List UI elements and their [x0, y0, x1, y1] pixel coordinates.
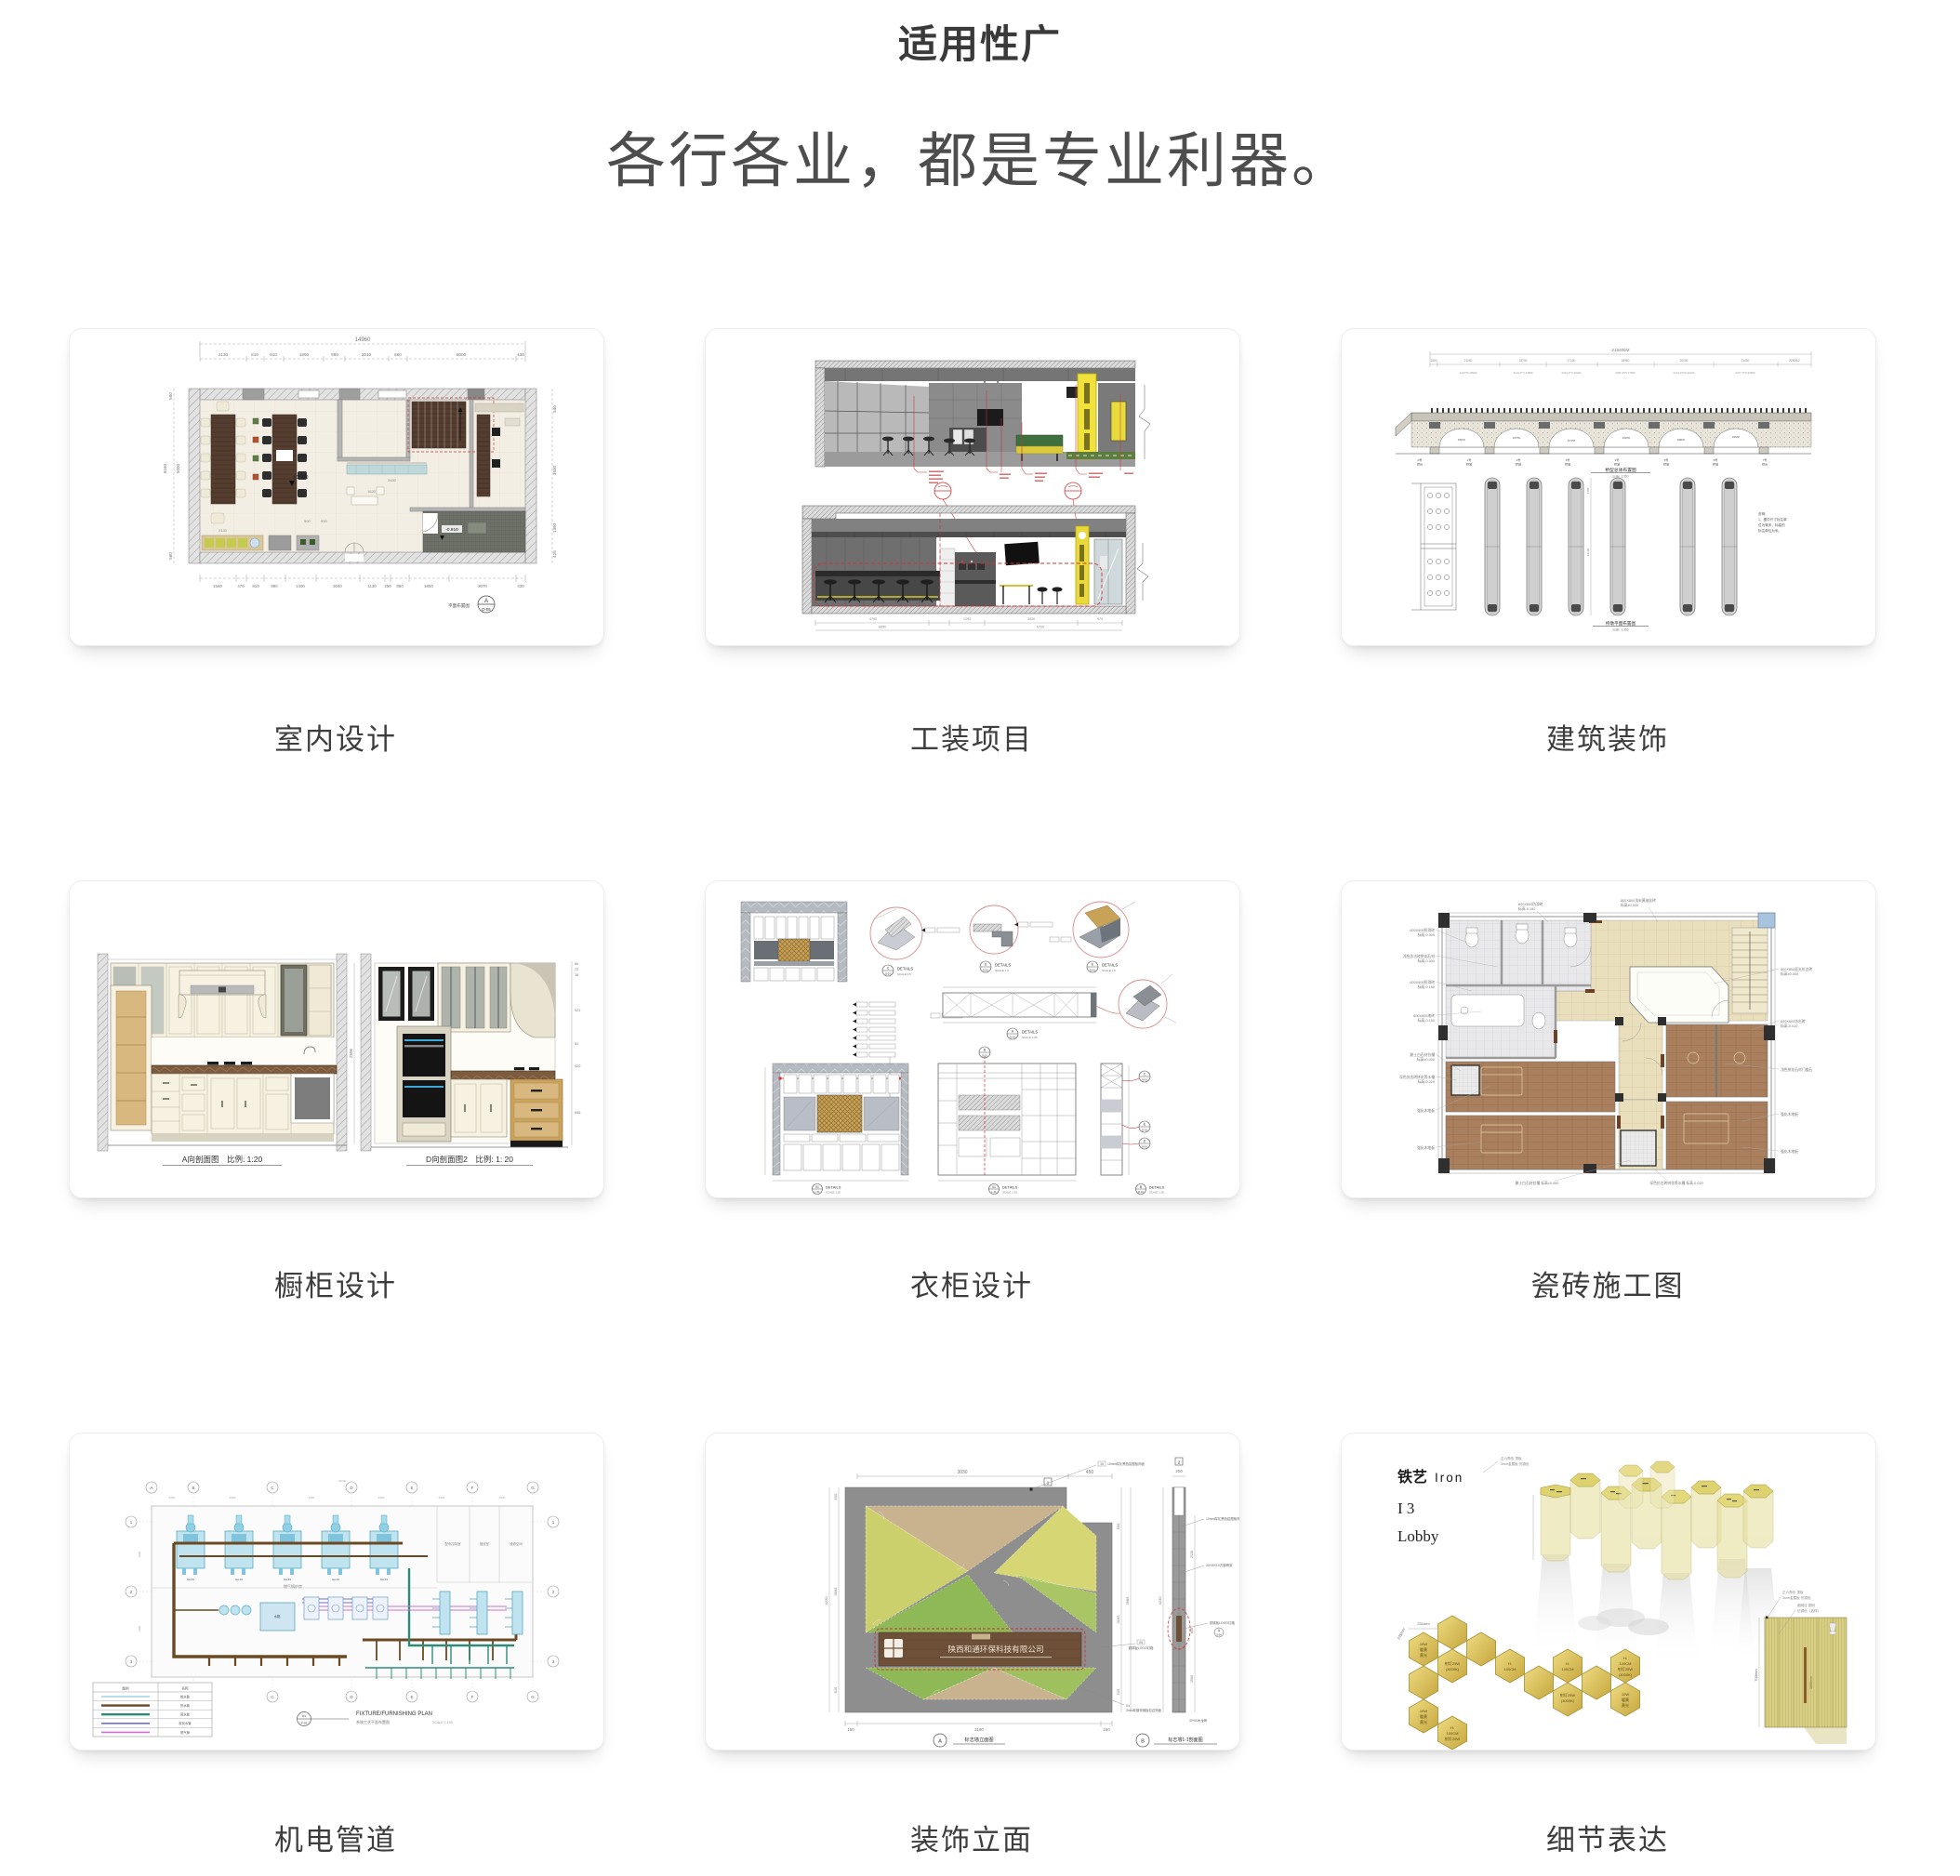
svg-text:01: 01	[815, 1185, 819, 1189]
svg-text:说明:: 说明:	[1758, 511, 1766, 516]
svg-text:DETAILS: DETAILS	[1002, 1185, 1018, 1190]
svg-text:860: 860	[396, 584, 404, 588]
svg-text:846: 846	[575, 1111, 580, 1115]
detail-circle-D	[970, 905, 1053, 954]
title-A: A 标志墙立面图	[934, 1734, 1005, 1747]
svg-text:铜锈板LOGO灯箱: 铜锈板LOGO灯箱	[1129, 1645, 1154, 1650]
svg-text:桥墩: 桥墩	[1663, 462, 1669, 467]
svg-text:3030: 3030	[957, 1470, 967, 1475]
svg-text:30*30*3.0方钢骨架: 30*30*3.0方钢骨架	[1206, 1563, 1233, 1567]
svg-text:D-01: D-01	[1138, 1190, 1144, 1194]
svg-text:DETAILS: DETAILS	[995, 963, 1011, 968]
svg-text:3: 3	[552, 1659, 555, 1664]
svg-text:1620: 1620	[367, 489, 377, 494]
svg-text:射灯25W: 射灯25W	[1618, 1666, 1633, 1671]
svg-text:550: 550	[1116, 1523, 1120, 1529]
svg-text:燃气锅炉房: 燃气锅炉房	[284, 1583, 302, 1589]
svg-text:16: 16	[575, 973, 578, 977]
svg-text:150: 150	[847, 1727, 854, 1732]
svg-text:D-01: D-01	[982, 1053, 987, 1057]
legend: 图例 名称 给水管 热水管 回水管 软化水管 燃气管	[93, 1683, 212, 1737]
svg-text:910: 910	[270, 352, 277, 357]
svg-text:5000: 5000	[457, 352, 467, 357]
triangles	[866, 1506, 1096, 1699]
svg-text:810: 810	[251, 352, 258, 357]
svg-text:1400: 1400	[296, 584, 305, 588]
svg-text:深色仿古砖拼花等水槽 标高-0.020: 深色仿古砖拼花等水槽 标高-0.020	[1649, 1181, 1702, 1185]
svg-text:2122.22*9=19100: 2122.22*9=19100	[1674, 371, 1695, 375]
svg-text:桥墩: 桥墩	[1614, 462, 1620, 467]
caption-decor-elevation: 装饰立面	[705, 1817, 1238, 1858]
caption-text: 室内设计	[274, 723, 397, 756]
svg-text:2277.7*9=20500: 2277.7*9=20500	[1735, 371, 1755, 375]
svg-text:3530: 3530	[552, 465, 557, 475]
svg-text:DETAILS: DETAILS	[1149, 1185, 1165, 1190]
caption-text: 细节表达	[1546, 1824, 1669, 1856]
svg-text:标高-0.150: 标高-0.150	[1418, 984, 1435, 989]
svg-text:强化木地板: 强化木地板	[1781, 1149, 1798, 1154]
svg-text:C: C	[887, 967, 890, 971]
svg-text:51: 51	[575, 1042, 578, 1046]
svg-text:F: F	[471, 1486, 474, 1490]
title-A: A向剖面图 比例: 1:20	[163, 1155, 282, 1166]
svg-text:2206.2*8=17650: 2206.2*8=17650	[1615, 371, 1636, 375]
svg-text:黄光: 黄光	[1622, 1702, 1629, 1708]
svg-text:标志墙1-1剖面图: 标志墙1-1剖面图	[1168, 1737, 1202, 1743]
svg-text:浅色拼花石材门槛石: 浅色拼花石材门槛石	[1781, 1067, 1812, 1072]
caption-text: 衣柜设计	[910, 1270, 1033, 1302]
elevation-title: 桥型总体布置图 scale: 1:350	[1591, 467, 1650, 479]
svg-text:scale: 1:350: scale: 1:350	[1612, 475, 1628, 479]
svg-text:爵士白石材拉槽 标高±0.000: 爵士白石材拉槽 标高±0.000	[1516, 1181, 1559, 1185]
svg-text:2130: 2130	[219, 528, 228, 533]
caption-text: 机电管道	[274, 1824, 397, 1856]
svg-text:2: 2	[1178, 1460, 1181, 1465]
dimensions-lower: 4790 1293 3430 974 6850 6730	[815, 617, 1122, 630]
svg-text:45000: 45000	[338, 1479, 347, 1483]
svg-text:A: A	[938, 1738, 942, 1744]
svg-text:2110*9=18990: 2110*9=18990	[1460, 371, 1477, 375]
svg-text:10mm厚灰黑色铝塑板饰面: 10mm厚灰黑色铝塑板饰面	[1206, 1516, 1239, 1521]
annotation-text-ticks	[929, 471, 1133, 483]
svg-text:3430: 3430	[1027, 617, 1035, 621]
svg-text:B: B	[1141, 1738, 1145, 1744]
svg-text:21050: 21050	[1464, 359, 1473, 363]
svg-text:4105: 4105	[1586, 487, 1590, 494]
svg-text:18950: 18950	[1622, 359, 1630, 363]
svg-text:1号: 1号	[1467, 457, 1472, 462]
svg-text:DETAILS: DETAILS	[897, 967, 913, 971]
svg-text:D: D	[350, 1486, 353, 1490]
svg-text:4号: 4号	[1615, 457, 1620, 462]
sheet-title: 01 P-03 FIXTURE/FURNISHING PLAN 系统工艺平面布置…	[298, 1711, 453, 1726]
svg-text:燃气管: 燃气管	[180, 1730, 191, 1735]
svg-text:系统工艺平面布置图: 系统工艺平面布置图	[356, 1719, 390, 1724]
svg-text:位为毫米，标高的: 位为毫米，标高的	[1758, 522, 1785, 527]
svg-text:平面布置图: 平面布置图	[448, 602, 470, 609]
svg-text:GA-01: GA-01	[235, 1578, 244, 1581]
svg-text:2500: 2500	[1430, 359, 1437, 363]
svg-text:600X600防滑砖: 600X600防滑砖	[1410, 928, 1435, 932]
svg-text:水箱: 水箱	[274, 1614, 281, 1618]
upper-elevation	[815, 361, 1150, 467]
svg-text:3165: 3165	[1116, 1615, 1120, 1624]
svg-text:A: A	[1012, 1030, 1014, 1034]
svg-text:515: 515	[833, 1686, 838, 1693]
caption-architecture: 建筑装饰	[1341, 716, 1874, 758]
titles: 铁艺 Iron I 3 Lobby 正六角形 顶板 3mm金属板 仿铜色	[1397, 1456, 1530, 1545]
svg-text:D-01: D-01	[1142, 1077, 1147, 1081]
railing	[1431, 408, 1807, 413]
svg-text:3480: 3480	[388, 478, 397, 482]
svg-text:R7450: R7450	[1568, 439, 1576, 443]
svg-text:R8250: R8250	[1622, 436, 1631, 440]
svg-text:H:: H:	[1508, 1661, 1512, 1666]
bar-counter	[347, 463, 427, 474]
svg-text:1: 1	[552, 1520, 555, 1525]
svg-text:射灯25W: 射灯25W	[1560, 1692, 1575, 1698]
svg-text:R5630: R5630	[1458, 438, 1466, 442]
wall-section: 200 2 4230 2130 600 1500 10mm厚灰黑色铝塑板饰面 3…	[1158, 1458, 1239, 1723]
svg-text:强化木地板: 强化木地板	[1417, 1108, 1435, 1113]
svg-text:100CM: 100CM	[1562, 1667, 1574, 1671]
svg-text:D-05: D-05	[482, 607, 491, 612]
svg-text:4230: 4230	[824, 1596, 828, 1605]
svg-text:0号: 0号	[1418, 457, 1423, 462]
plan-title: 桥墩平面布置图 scale: 1:350	[1593, 620, 1649, 632]
svg-text:L-01: L-01	[814, 1190, 820, 1194]
svg-text:860: 860	[394, 352, 402, 357]
svg-text:6160: 6160	[163, 463, 167, 473]
svg-text:1660: 1660	[213, 584, 222, 588]
svg-text:标高-0.020: 标高-0.020	[1418, 1079, 1435, 1084]
page-title: 适用性广	[0, 13, 1960, 70]
svg-text:231mm: 231mm	[1417, 1621, 1430, 1626]
svg-text:F: F	[471, 1695, 474, 1699]
svg-text:15: 15	[1100, 1462, 1104, 1466]
glass-door	[1094, 539, 1122, 604]
svg-text:H:: H:	[1566, 1661, 1569, 1666]
svg-text:D-01: D-01	[983, 968, 988, 971]
big-elevation-left: 01 L-01 DETAILS SCALE 1:25	[765, 1064, 908, 1195]
svg-text:强化木地板: 强化木地板	[1781, 1112, 1798, 1116]
svg-text:425: 425	[552, 550, 557, 558]
svg-text:D向剖面图2 比例: 1: 20: D向剖面图2 比例: 1: 20	[426, 1155, 513, 1164]
svg-text:暖黄: 暖黄	[1420, 1713, 1427, 1719]
svg-text:D-01: D-01	[1090, 968, 1095, 971]
svg-text:细网目 铜网: 细网目 铜网	[1797, 1603, 1815, 1607]
svg-text:1、图中尺寸标注单: 1、图中尺寸标注单	[1758, 517, 1787, 522]
svg-text:铁艺: 铁艺	[1397, 1468, 1427, 1486]
horizontal-section: A D-01 DETAILS SCALE 1:25	[943, 974, 1176, 1039]
svg-text:6850: 6850	[879, 626, 886, 629]
svg-text:标高-0.150: 标高-0.150	[1418, 1018, 1435, 1023]
pier-labels: 0号桥台 1号桥墩 2号桥墩 3号桥墩 4号桥墩 5号桥墩 6号桥墩 7号桥台	[1417, 457, 1768, 467]
prisms	[1541, 1461, 1773, 1579]
mini-elevation	[741, 902, 847, 982]
pier-plans: 4105 24190	[1485, 478, 1737, 615]
svg-text:3号: 3号	[1566, 457, 1570, 462]
svg-text:C: C	[1144, 1073, 1146, 1077]
svg-text:R9350: R9350	[1732, 435, 1741, 439]
svg-text:桥墩平面布置图: 桥墩平面布置图	[1606, 620, 1636, 627]
svg-text:01: 01	[992, 1185, 996, 1189]
svg-text:430: 430	[517, 584, 524, 588]
svg-text:Lobby: Lobby	[1397, 1527, 1439, 1545]
svg-text:7号: 7号	[1763, 457, 1768, 462]
svg-text:scale: 1:350: scale: 1:350	[1612, 628, 1628, 632]
notes: 说明: 1、图中尺寸标注单 位为毫米，标高的 标注单位为米。	[1758, 511, 1787, 533]
caption-wardrobe-design: 衣柜设计	[705, 1262, 1238, 1304]
callouts-right: CD-01 ED-01 DD-01	[1122, 1071, 1150, 1149]
svg-text:921: 921	[575, 1009, 580, 1012]
svg-text:72: 72	[575, 968, 578, 971]
svg-text:标高-0.300: 标高-0.300	[1418, 932, 1435, 937]
prism-cluster	[1533, 1461, 1781, 1671]
caption-commercial-project: 工装项目	[705, 716, 1238, 758]
svg-text:200: 200	[1175, 1469, 1183, 1473]
svg-text:800X800亚光仿古砖: 800X800亚光仿古砖	[1781, 967, 1812, 971]
svg-text:A: A	[484, 599, 488, 604]
svg-text:450: 450	[1086, 1470, 1094, 1475]
svg-text:3180: 3180	[974, 1727, 984, 1732]
svg-text:580: 580	[168, 392, 173, 400]
dimensions-top: 215400/2 250021050 1570017100 1895020000…	[1430, 348, 1811, 375]
svg-text:430: 430	[517, 352, 524, 357]
svg-text:P-03: P-03	[301, 1721, 308, 1724]
svg-text:100CM: 100CM	[1447, 1731, 1459, 1736]
svg-text:520: 520	[575, 1064, 580, 1068]
svg-text:D-01: D-01	[1142, 1144, 1147, 1148]
svg-text:爵士白石材拉槽: 爵士白石材拉槽	[1410, 1052, 1435, 1057]
svg-text:2506: 2506	[349, 1048, 353, 1058]
svg-text:H:: H:	[1450, 1725, 1454, 1730]
svg-text:1500: 1500	[1190, 1675, 1194, 1683]
svg-text:04: 04	[1126, 1704, 1130, 1708]
center-island	[1630, 967, 1728, 1023]
svg-text:GA-01: GA-01	[332, 1578, 340, 1581]
svg-text:(3000K): (3000K)	[1561, 1698, 1575, 1703]
sign-band: 陕西和通环保科技有限公司	[875, 1629, 1085, 1670]
lamp-icon	[1829, 1623, 1836, 1634]
svg-text:A向剖面图 比例: 1:20: A向剖面图 比例: 1:20	[182, 1155, 263, 1164]
svg-text:150: 150	[1103, 1727, 1110, 1732]
svg-text:±0.000: ±0.000	[293, 475, 309, 481]
svg-text:231mm: 231mm	[1396, 1627, 1406, 1641]
svg-text:维修空间: 维修空间	[510, 1541, 523, 1546]
svg-text:桥墩: 桥墩	[1713, 462, 1718, 467]
dark-glass-cabinet	[281, 965, 331, 1036]
svg-text:14960: 14960	[355, 337, 371, 343]
svg-text:标高±0.000: 标高±0.000	[1621, 903, 1638, 907]
svg-text:1: 1	[130, 1520, 133, 1525]
caption-cabinet-design: 橱柜设计	[69, 1262, 603, 1304]
svg-text:L-01: L-01	[991, 1190, 997, 1194]
svg-text:3mm厚镀锌钢板包边饰面: 3mm厚镀锌钢板包边饰面	[1126, 1708, 1162, 1712]
oven-tower	[397, 1026, 451, 1142]
svg-text:陕西和通环保科技有限公司: 陕西和通环保科技有限公司	[947, 1644, 1043, 1654]
pier-bodies	[1430, 447, 1768, 454]
svg-text:暖黄: 暖黄	[1622, 1697, 1629, 1702]
svg-text:9000: 9000	[138, 1551, 141, 1557]
terrace-room: -0.910	[423, 511, 525, 552]
svg-text:(3000K): (3000K)	[1619, 1672, 1633, 1677]
svg-text:810: 810	[252, 584, 259, 588]
caption-mep-piping: 机电管道	[69, 1817, 603, 1858]
svg-text:A: A	[1218, 1629, 1221, 1632]
svg-text:E: E	[1144, 1123, 1146, 1127]
svg-text:桥型总体布置图: 桥型总体布置图	[1605, 467, 1636, 473]
svg-text:Iron: Iron	[1435, 1471, 1463, 1485]
svg-text:热水管: 热水管	[180, 1703, 191, 1708]
svg-text:铜锈板LOGO灯箱: 铜锈板LOGO灯箱	[1210, 1620, 1235, 1625]
caption-text: 瓷砖施工图	[1531, 1270, 1685, 1302]
svg-text:R8830: R8830	[1677, 438, 1686, 442]
svg-text:15700: 15700	[1519, 359, 1528, 363]
drawing-reference: 平面布置图 A D-05	[448, 596, 495, 613]
svg-text:R6750: R6750	[1513, 436, 1521, 440]
svg-text:桥墩: 桥墩	[1466, 462, 1472, 467]
svg-text:SCALE 1:5: SCALE 1:5	[897, 972, 911, 976]
kitchen-elevation-drawing: A向剖面图 比例: 1:20 2506	[70, 881, 603, 1197]
detail-labels-top: C D-01 DETAILS SCALE 1:5 D D-01 DETAILS …	[882, 961, 1118, 976]
svg-text:10W: 10W	[1420, 1709, 1427, 1713]
svg-text:540: 540	[552, 405, 557, 413]
svg-text:GA-01: GA-01	[380, 1578, 389, 1581]
svg-text:黄光: 黄光	[1420, 1652, 1427, 1658]
svg-text:1000mm: 1000mm	[1809, 1676, 1813, 1689]
svg-text:2130: 2130	[219, 352, 229, 357]
svg-text:G: G	[531, 1695, 535, 1699]
svg-text:回水管: 回水管	[180, 1712, 191, 1717]
svg-text:2010: 2010	[362, 352, 372, 357]
svg-text:D: D	[985, 963, 987, 967]
svg-text:D: D	[1144, 1140, 1146, 1143]
svg-text:700mm: 700mm	[1754, 1669, 1758, 1682]
svg-text:GA-01: GA-01	[187, 1578, 195, 1581]
svg-text:250: 250	[384, 584, 391, 588]
dimensions-top: 14960 2130810 9101850 9602010 8605000 43…	[200, 337, 525, 362]
svg-text:30*50木龙骨: 30*50木龙骨	[1189, 1718, 1208, 1723]
svg-text:21400: 21400	[1741, 359, 1750, 363]
svg-text:G: G	[531, 1486, 535, 1490]
card-interior-design: 14960 2130810 9101850 9602010 8605000 43…	[69, 328, 604, 646]
svg-text:150: 150	[833, 1493, 838, 1499]
svg-text:22806/2: 22806/2	[1789, 359, 1800, 363]
caption-detail-expression: 细节表达	[1341, 1817, 1874, 1858]
svg-text:标高-0.150: 标高-0.150	[1518, 906, 1535, 911]
svg-text:6730: 6730	[1037, 626, 1044, 629]
dimensions-bottom: 1660470 810990 14002040 1130250 8601850 …	[200, 575, 525, 588]
svg-text:3070: 3070	[478, 584, 487, 588]
svg-text:SCALE 1:25: SCALE 1:25	[826, 1190, 841, 1194]
svg-text:3: 3	[130, 1659, 133, 1664]
svg-text:8400: 8400	[378, 1496, 385, 1499]
svg-text:FIXTURE/FURNISHING PLAN: FIXTURE/FURNISHING PLAN	[356, 1711, 432, 1717]
svg-text:900: 900	[321, 519, 327, 523]
svg-text:2314.2*7=16200: 2314.2*7=16200	[1561, 371, 1582, 375]
svg-text:2: 2	[552, 1590, 555, 1594]
bar-elevation-drawing: 4790 1293 3430 974 6850 6730	[706, 329, 1239, 645]
svg-text:SCALE 1:5: SCALE 1:5	[1102, 969, 1116, 972]
dimensions-left: 580 6160 5000 580	[163, 389, 180, 563]
sign-wall-drawing: 陕西和通环保科技有限公司 3030 450 1 150 3565 515 423…	[706, 1433, 1239, 1750]
svg-text:SCALE 1:5: SCALE 1:5	[995, 969, 1009, 972]
svg-text:215400/2: 215400/2	[1611, 348, 1630, 352]
big-elevation-mid: B D-01 01 L-01 DETAILS SCALE 1:25	[938, 1047, 1076, 1195]
svg-text:射灯25W: 射灯25W	[1445, 1660, 1460, 1666]
svg-text:600: 600	[1190, 1628, 1194, 1633]
page-subtitle: 各行各业，都是专业利器。	[0, 113, 1960, 199]
svg-text:3689: 3689	[1125, 1596, 1130, 1605]
svg-text:桥墩: 桥墩	[1565, 462, 1570, 467]
svg-text:E: E	[410, 1695, 413, 1699]
svg-text:1850: 1850	[299, 352, 310, 357]
bridge-elevation: R5630R6750 R7450R8250 R8830R9350 0号桥台 1号…	[1396, 408, 1811, 479]
svg-text:20000: 20000	[1680, 359, 1689, 363]
svg-text:射灯25W: 射灯25W	[1445, 1736, 1460, 1741]
svg-text:2130: 2130	[1190, 1551, 1194, 1558]
table-stools	[1000, 586, 1062, 604]
svg-text:D-04: D-04	[1216, 1634, 1222, 1637]
svg-text:D-01: D-01	[1142, 1128, 1147, 1131]
svg-text:标高-0.010: 标高-0.010	[1781, 1024, 1797, 1028]
svg-text:100CM: 100CM	[1504, 1667, 1516, 1671]
svg-text:仿铜色（选样）: 仿铜色（选样）	[1797, 1608, 1821, 1613]
svg-text:D: D	[350, 1695, 353, 1699]
svg-text:600X600地砖: 600X600地砖	[1413, 1013, 1435, 1018]
svg-text:I 3: I 3	[1397, 1499, 1414, 1517]
svg-text:E: E	[1092, 963, 1094, 967]
card-wardrobe-design: C D-01 DETAILS SCALE 1:5 D D-01 DETAILS …	[705, 880, 1240, 1198]
svg-text:软化水管: 软化水管	[179, 1721, 192, 1725]
svg-text:100CM: 100CM	[1620, 1661, 1632, 1666]
caption-interior-design: 室内设计	[69, 716, 603, 758]
svg-text:H:: H:	[1623, 1656, 1627, 1660]
svg-text:正六角形 顶板: 正六角形 顶板	[1501, 1456, 1522, 1460]
pile-circles	[1427, 493, 1449, 595]
lower-elevation	[802, 506, 1148, 614]
card-commercial-project: 4790 1293 3430 974 6850 6730	[705, 328, 1240, 646]
svg-text:(3000K): (3000K)	[1446, 1667, 1460, 1671]
caption-text: 建筑装饰	[1546, 723, 1669, 756]
svg-text:600X600防滑砖: 600X600防滑砖	[1410, 980, 1435, 984]
svg-text:6号: 6号	[1714, 457, 1718, 462]
svg-text:2号: 2号	[1516, 457, 1521, 462]
svg-text:3mm金属板 仿铜色: 3mm金属板 仿铜色	[1782, 1595, 1811, 1600]
svg-text:B: B	[192, 1486, 194, 1490]
svg-text:8400: 8400	[230, 1496, 236, 1499]
svg-text:974: 974	[1097, 617, 1103, 621]
svg-text:SCALE 1:25: SCALE 1:25	[1022, 1036, 1038, 1039]
card-architecture-decoration: 215400/2 250021050 1570017100 1895020000…	[1341, 328, 1876, 646]
svg-text:GA-01: GA-01	[284, 1578, 292, 1581]
bridge-drawing: 215400/2 250021050 1570017100 1895020000…	[1342, 329, 1875, 645]
title-B: B 标志墙1-1剖面图	[1136, 1734, 1217, 1747]
caption-text: 橱柜设计	[274, 1270, 397, 1302]
svg-text:SCALE 1:25: SCALE 1:25	[1149, 1190, 1164, 1194]
svg-text:C: C	[271, 1486, 274, 1490]
svg-text:给水管: 给水管	[180, 1694, 191, 1698]
detail-circle-E	[1050, 902, 1135, 958]
svg-text:580: 580	[168, 552, 173, 560]
detail-circle-C	[870, 907, 960, 959]
svg-text:8400: 8400	[499, 1496, 506, 1499]
svg-text:1850: 1850	[424, 584, 433, 588]
svg-text:浅色仿古砖拼花石材: 浅色仿古砖拼花石材	[1403, 954, 1435, 958]
svg-text:8400: 8400	[309, 1496, 315, 1499]
svg-text:1293: 1293	[963, 617, 971, 621]
